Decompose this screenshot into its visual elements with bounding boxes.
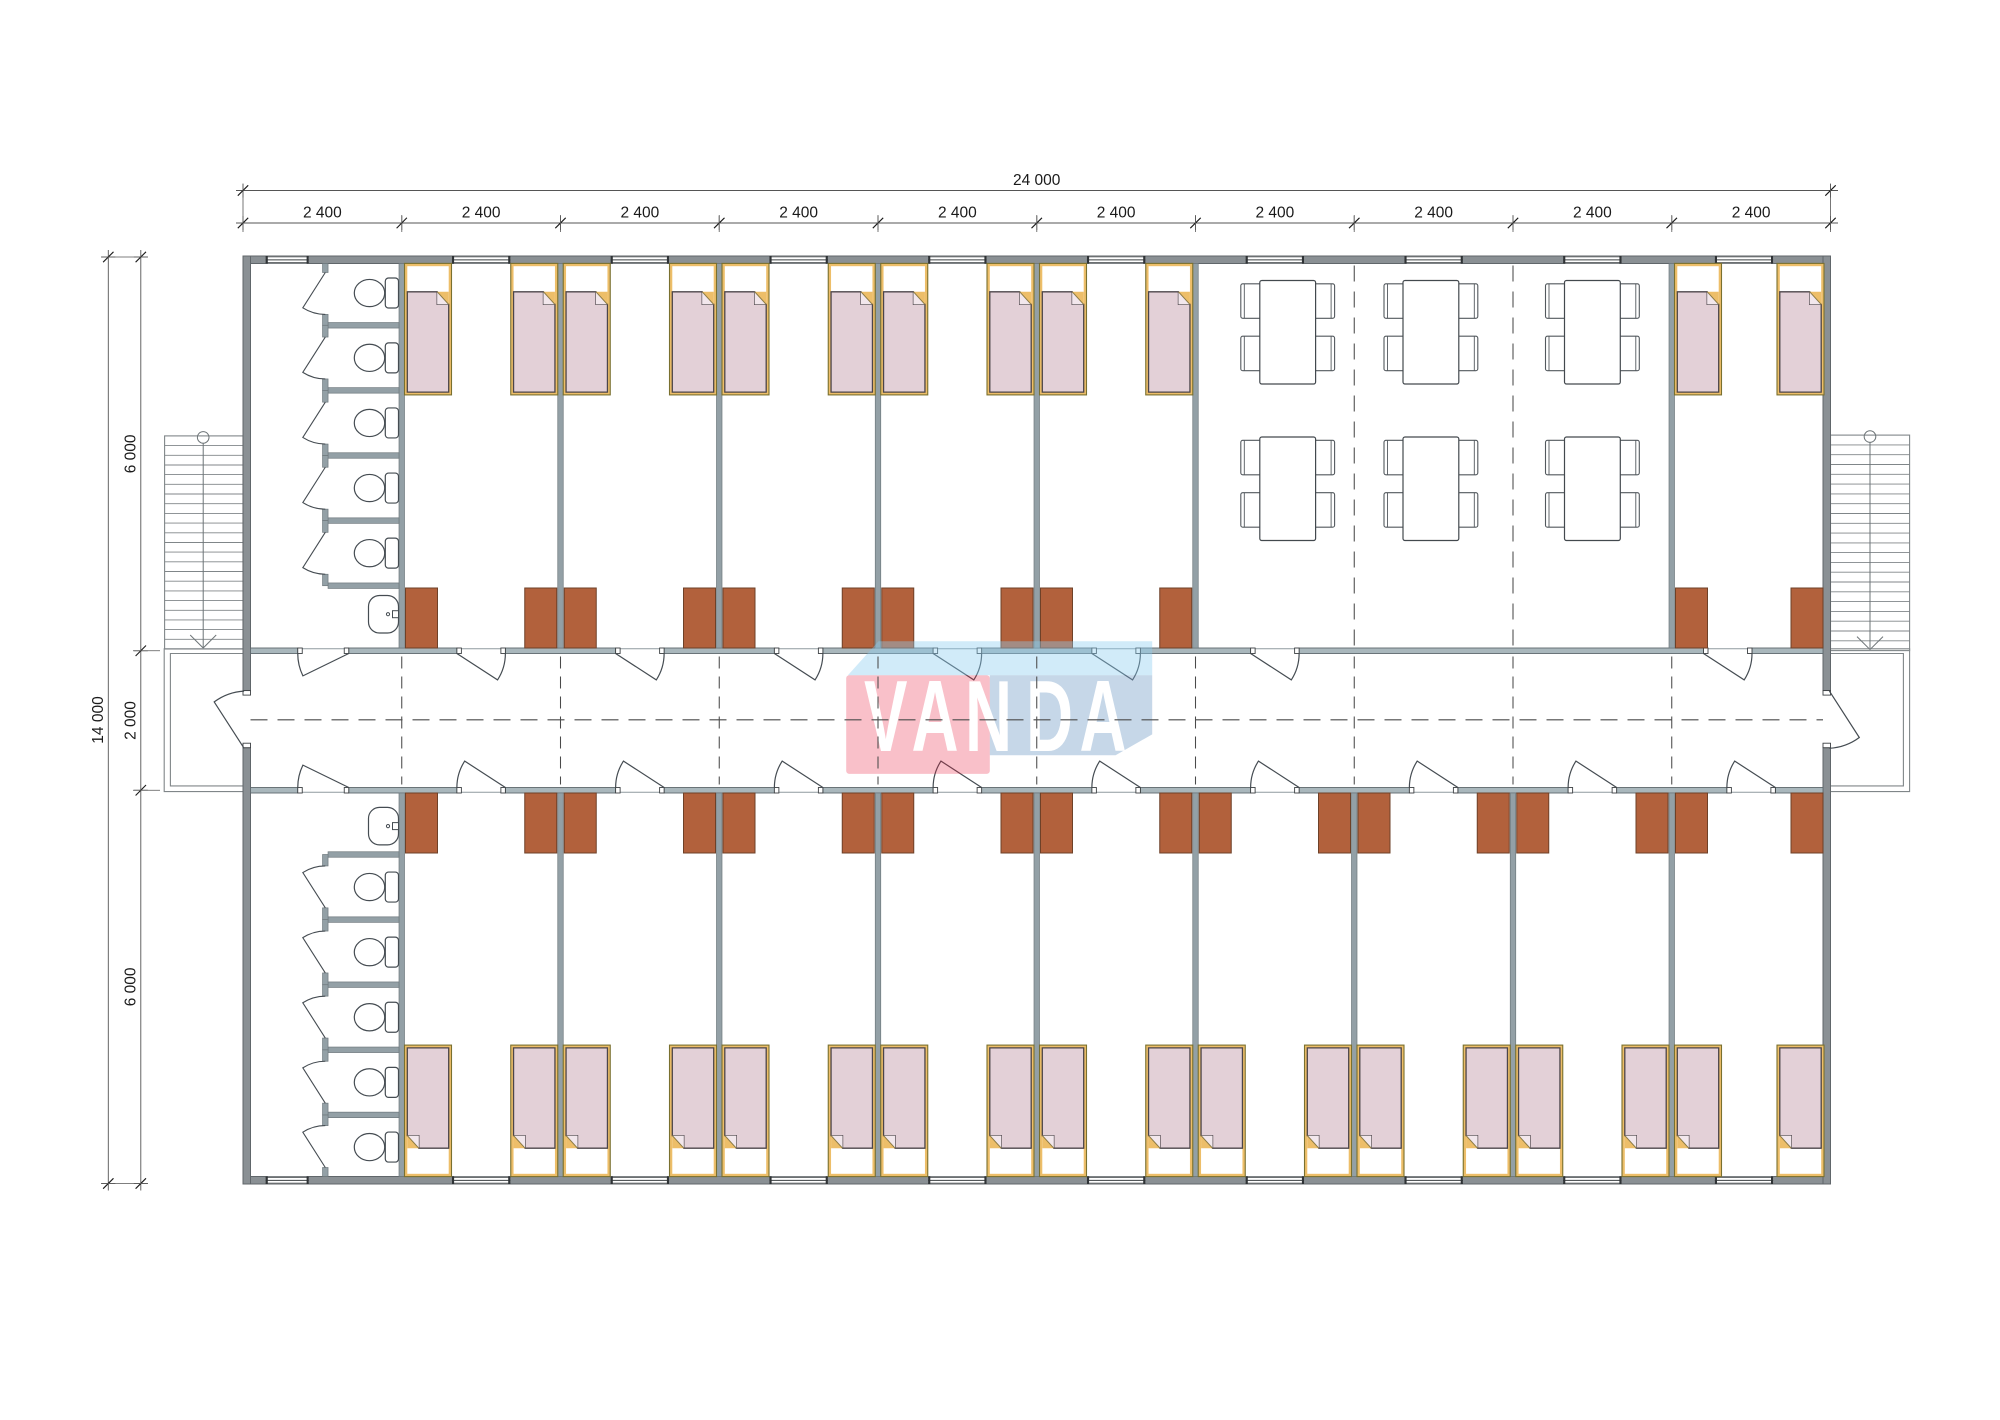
svg-text:2 400: 2 400 [1414, 205, 1453, 222]
svg-text:2 000: 2 000 [123, 701, 140, 740]
svg-text:2 400: 2 400 [1097, 205, 1136, 222]
svg-text:2 400: 2 400 [1256, 205, 1295, 222]
svg-text:2 400: 2 400 [938, 205, 977, 222]
svg-text:6 000: 6 000 [123, 967, 140, 1006]
svg-text:2 400: 2 400 [1732, 205, 1771, 222]
svg-text:2 400: 2 400 [303, 205, 342, 222]
svg-text:2 400: 2 400 [462, 205, 501, 222]
svg-text:14 000: 14 000 [90, 696, 107, 744]
svg-text:6 000: 6 000 [123, 434, 140, 473]
svg-text:24 000: 24 000 [1013, 172, 1061, 189]
svg-text:D: D [1026, 661, 1073, 774]
svg-text:2 400: 2 400 [1573, 205, 1612, 222]
svg-text:A: A [912, 661, 959, 774]
svg-text:2 400: 2 400 [779, 205, 818, 222]
svg-text:V: V [864, 661, 908, 774]
svg-text:N: N [965, 661, 1012, 774]
svg-text:2 400: 2 400 [621, 205, 660, 222]
svg-text:A: A [1080, 661, 1127, 774]
